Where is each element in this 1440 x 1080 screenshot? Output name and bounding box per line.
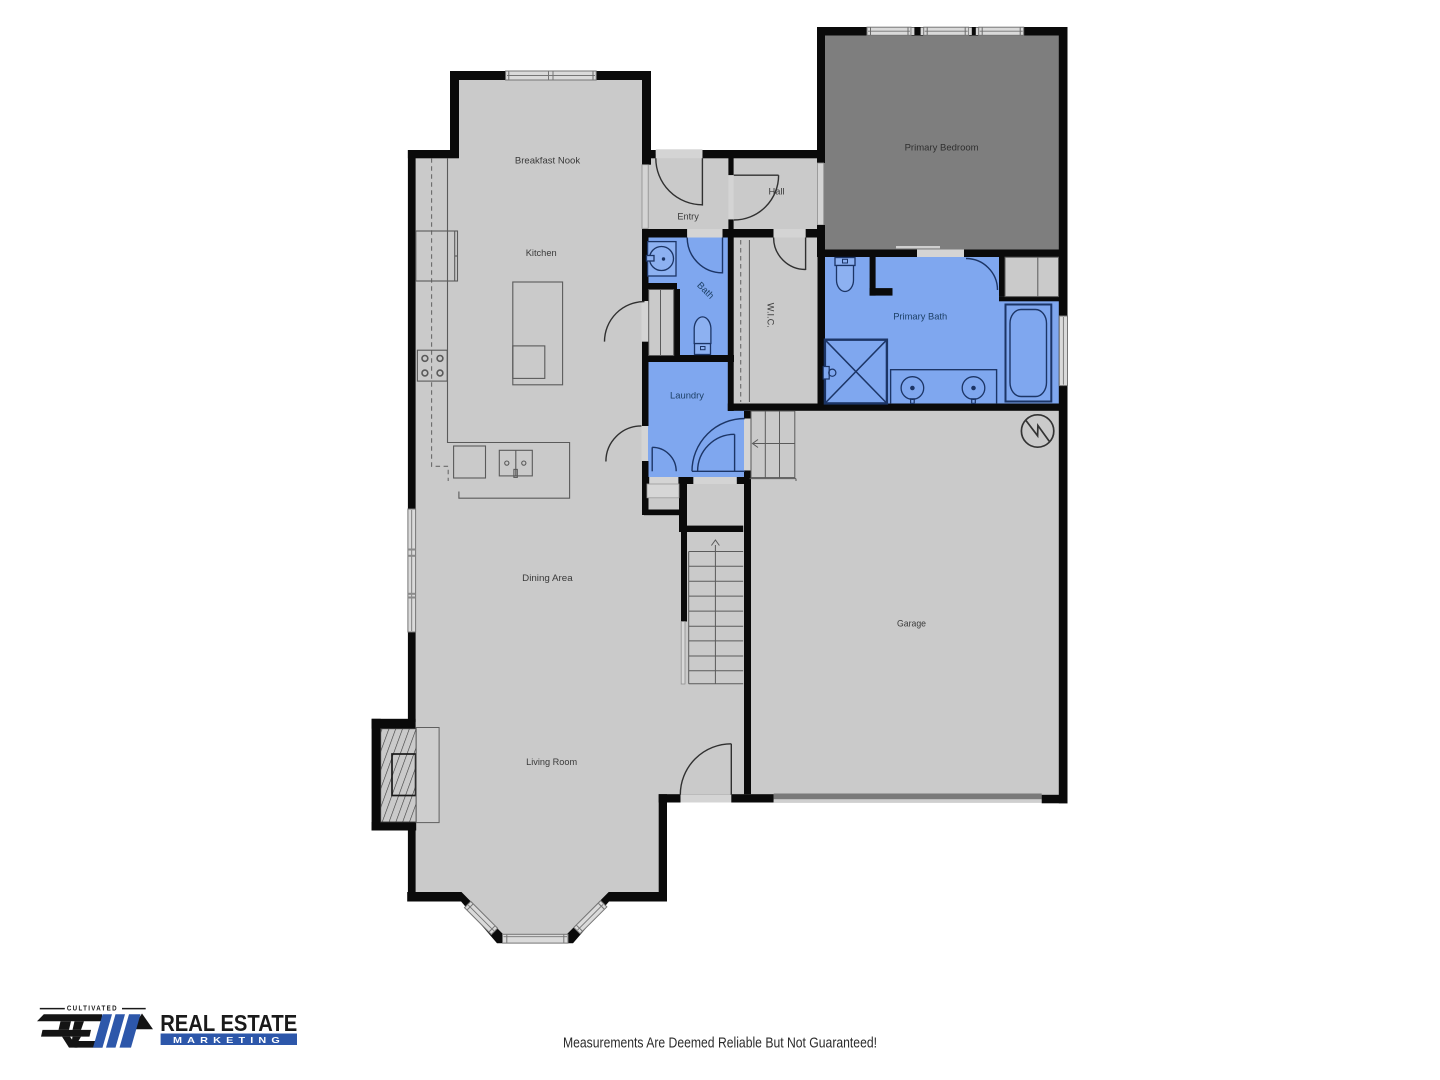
svg-text:Laundry: Laundry <box>670 390 704 401</box>
svg-text:Kitchen: Kitchen <box>526 248 557 259</box>
svg-text:Primary Bedroom: Primary Bedroom <box>905 143 979 154</box>
svg-text:Hall: Hall <box>769 187 785 198</box>
svg-text:Primary Bath: Primary Bath <box>893 312 947 323</box>
svg-text:Breakfast Nook: Breakfast Nook <box>515 156 581 167</box>
svg-text:Living Room: Living Room <box>526 757 577 768</box>
svg-text:CULTIVATED: CULTIVATED <box>67 1005 118 1012</box>
svg-text:Entry: Entry <box>677 212 699 223</box>
svg-text:Garage: Garage <box>897 619 926 630</box>
svg-text:W.I.C.: W.I.C. <box>765 303 776 328</box>
svg-text:REAL ESTATE: REAL ESTATE <box>160 1010 297 1036</box>
svg-text:Measurements Are Deemed Reliab: Measurements Are Deemed Reliable But Not… <box>563 1036 877 1052</box>
svg-text:MARKETING: MARKETING <box>173 1035 285 1045</box>
svg-text:Dining Area: Dining Area <box>522 573 573 584</box>
